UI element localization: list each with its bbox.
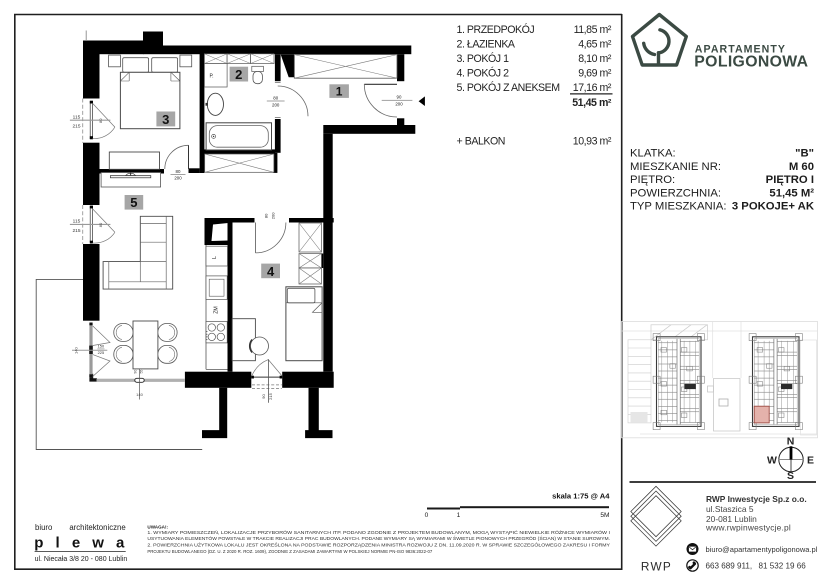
svg-text:17,16 m²: 17,16 m² <box>573 82 612 94</box>
svg-text:biuro: biuro <box>35 523 53 532</box>
svg-text:80: 80 <box>264 213 269 218</box>
svg-text:skala 1:75 @ A4: skala 1:75 @ A4 <box>552 491 610 500</box>
svg-text:80: 80 <box>176 169 181 174</box>
svg-text:51,45 m²: 51,45 m² <box>572 97 612 109</box>
svg-text:4. POKÓJ 2: 4. POKÓJ 2 <box>457 67 510 80</box>
svg-text:TYP MIESZKANIA:: TYP MIESZKANIA: <box>630 201 726 213</box>
svg-text:MIESZKANIE NR:: MIESZKANIE NR: <box>630 161 721 173</box>
svg-text:51,45 M²: 51,45 M² <box>769 187 814 199</box>
svg-text:N: N <box>787 436 795 448</box>
svg-text:POLIGONOWA: POLIGONOWA <box>694 53 808 70</box>
svg-text:POWIERZCHNIA:: POWIERZCHNIA: <box>630 187 721 199</box>
svg-text:4,65 m²: 4,65 m² <box>578 38 612 50</box>
svg-text:80: 80 <box>98 118 103 123</box>
svg-text:90: 90 <box>261 394 266 399</box>
svg-text:150: 150 <box>98 344 105 349</box>
svg-text:RWP Inwestycje Sp.z o.o.: RWP Inwestycje Sp.z o.o. <box>706 494 807 504</box>
svg-text:1: 1 <box>457 512 461 519</box>
svg-text:+ BALKON: + BALKON <box>457 136 506 148</box>
svg-text:55: 55 <box>140 370 144 374</box>
svg-text:11,85 m²: 11,85 m² <box>574 24 612 36</box>
svg-text:200: 200 <box>395 102 403 107</box>
svg-text:8,10 m²: 8,10 m² <box>578 53 612 65</box>
svg-text:10,93 m²: 10,93 m² <box>573 136 612 148</box>
svg-text:L: L <box>212 256 218 259</box>
svg-text:140: 140 <box>136 392 143 397</box>
svg-text:90: 90 <box>133 370 137 374</box>
svg-text:215: 215 <box>72 124 80 130</box>
svg-text:3 POKOJE+ AK: 3 POKOJE+ AK <box>732 201 815 213</box>
svg-text:3: 3 <box>162 112 169 127</box>
svg-text:biuro@apartamentypoligonowa.pl: biuro@apartamentypoligonowa.pl <box>706 545 818 554</box>
svg-text:5M: 5M <box>600 512 609 519</box>
svg-text:200: 200 <box>174 176 182 181</box>
svg-text:90: 90 <box>397 94 402 99</box>
svg-text:PROJEKTU BUDOWLANEGO (DZ. U. Z: PROJEKTU BUDOWLANEGO (DZ. U. Z 2020 R. R… <box>147 549 432 554</box>
svg-text:5. POKÓJ Z ANEKSEM: 5. POKÓJ Z ANEKSEM <box>457 81 560 94</box>
svg-text:215: 215 <box>72 228 80 234</box>
svg-text:5: 5 <box>130 195 137 210</box>
svg-text:PIĘTRO:: PIĘTRO: <box>630 174 675 186</box>
svg-text:80: 80 <box>98 222 103 227</box>
svg-text:2. POWIERZCHNIA UŻYTKOWA LOKAL: 2. POWIERZCHNIA UŻYTKOWA LOKALU JEST OKR… <box>147 543 610 548</box>
svg-text:architektoniczne: architektoniczne <box>69 523 125 532</box>
svg-text:663 689 911, 81 532 19 66: 663 689 911, 81 532 19 66 <box>706 561 807 570</box>
svg-text:E: E <box>807 454 814 466</box>
svg-text:3. POKÓJ 1: 3. POKÓJ 1 <box>457 52 510 65</box>
svg-text:PIĘTRO I: PIĘTRO I <box>766 174 814 186</box>
svg-text:M 60: M 60 <box>789 161 814 173</box>
svg-text:ZM: ZM <box>214 306 220 314</box>
svg-text:9,69 m²: 9,69 m² <box>578 68 612 80</box>
svg-text:0: 0 <box>425 512 429 519</box>
svg-text:2: 2 <box>235 67 242 82</box>
svg-text:1. PRZEDPOKÓJ: 1. PRZEDPOKÓJ <box>457 23 535 36</box>
svg-text:225: 225 <box>98 350 105 355</box>
svg-text:2. ŁAZIENKA: 2. ŁAZIENKA <box>457 38 516 50</box>
svg-text:115: 115 <box>73 219 81 225</box>
svg-text:RWP: RWP <box>641 559 672 573</box>
svg-text:www.rwpinwestycje.pl: www.rwpinwestycje.pl <box>705 522 791 532</box>
svg-text:ul.Staszica 5: ul.Staszica 5 <box>706 504 754 514</box>
svg-text:S: S <box>787 470 794 482</box>
svg-text:140: 140 <box>74 346 79 353</box>
svg-text:4: 4 <box>267 264 275 279</box>
svg-text:ul. Niecała 3/8 20 - 080 Lubl: ul. Niecała 3/8 20 - 080 Lublin <box>35 556 128 563</box>
svg-text:P.: P. <box>209 74 213 80</box>
svg-text:1: 1 <box>336 85 343 99</box>
svg-text:USYTUOWANIA ELEMENTÓW POWSTAŁE: USYTUOWANIA ELEMENTÓW POWSTAŁE W TRAKCIE… <box>147 536 610 541</box>
svg-text:1. WYMIARY POMIESZCZEŃ, LOKALI: 1. WYMIARY POMIESZCZEŃ, LOKALIZACJE PRZY… <box>147 530 610 535</box>
svg-text:W: W <box>767 454 777 466</box>
svg-text:UWAGA!:: UWAGA!: <box>147 525 168 530</box>
svg-text:80: 80 <box>273 95 278 100</box>
svg-text:KLATKA:: KLATKA: <box>630 148 676 160</box>
svg-text:115: 115 <box>73 114 81 120</box>
svg-text:200: 200 <box>270 212 275 219</box>
svg-text:plewa: plewa <box>34 534 136 551</box>
svg-text:200: 200 <box>272 103 280 108</box>
svg-text:215: 215 <box>268 392 273 399</box>
svg-text:"B": "B" <box>795 148 814 160</box>
